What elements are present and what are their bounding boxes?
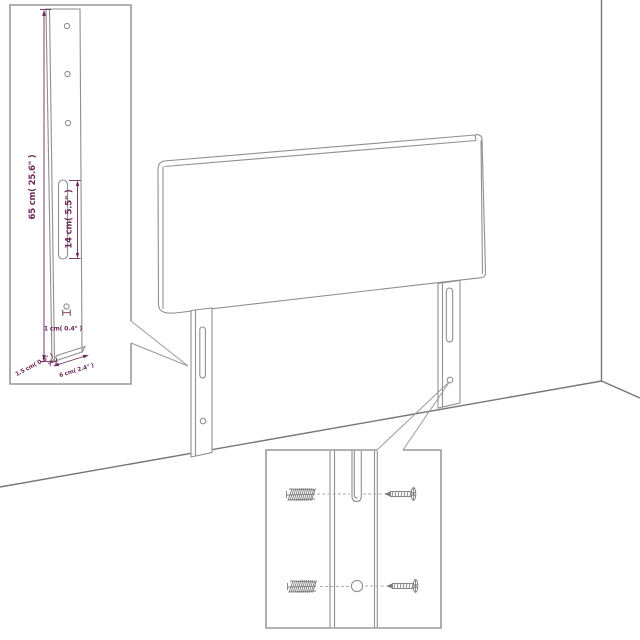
inset-leg-hole-2 <box>65 71 70 76</box>
inset-leg-side-view: 65 cm( 25.6" ) 14 cm( 5.5" ) 1 cm( 0.4" … <box>10 5 131 384</box>
headboard-panel <box>158 135 486 314</box>
headboard <box>158 135 486 314</box>
inset-leg-small-hole <box>64 304 69 309</box>
left-leg <box>191 308 212 457</box>
floor-line-right <box>602 381 640 398</box>
inset-leg-hole-1 <box>64 23 69 28</box>
leg-height-label: 65 cm( 25.6" ) <box>28 154 38 219</box>
inset-leg-drawing <box>46 9 85 362</box>
left-leg-slot <box>200 327 206 378</box>
right-leg-slot <box>446 288 452 342</box>
hole-diameter-label: 1 cm( 0.4" ) <box>44 326 83 333</box>
right-leg-hole <box>447 377 453 383</box>
callout-left-leg-lower-line <box>131 343 188 366</box>
slot-length-label: 14 cm( 5.5" ) <box>65 189 75 249</box>
callout-lines <box>131 321 449 450</box>
callout-right-leg-line-b <box>403 383 449 451</box>
product-diagram: 65 cm( 25.6" ) 14 cm( 5.5" ) 1 cm( 0.4" … <box>0 0 640 640</box>
inset-fastener-box-fill <box>266 450 441 628</box>
inset-leg-hole-3 <box>65 120 70 125</box>
inset-fastener-detail <box>266 450 441 628</box>
left-leg-hole <box>200 418 206 424</box>
callout-left-leg-upper-line <box>131 321 188 366</box>
callout-right-leg-line-a <box>377 383 449 451</box>
assembly-diagram-canvas: 65 cm( 25.6" ) 14 cm( 5.5" ) 1 cm( 0.4" … <box>0 0 640 640</box>
inset-hole <box>351 580 362 591</box>
